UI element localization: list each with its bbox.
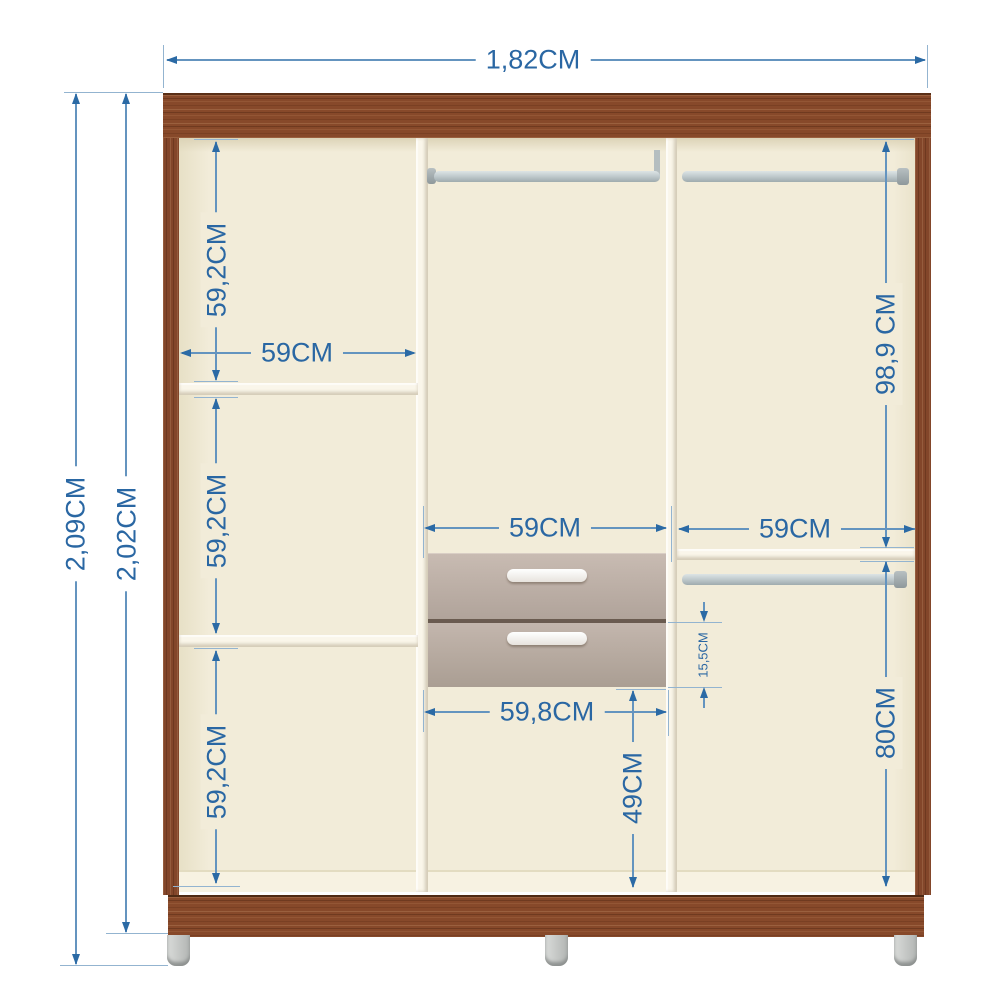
ext-line: [173, 886, 240, 887]
ext-line: [668, 690, 669, 736]
dim-arrow: [882, 561, 890, 572]
drawer-top-handle: [507, 569, 587, 582]
dim-stem: [703, 698, 705, 708]
dim-arrow: [212, 398, 220, 409]
dim-arrow: [882, 141, 890, 152]
dim-label-drawer-height: 15,5CM: [695, 628, 712, 682]
ext-line: [423, 506, 424, 558]
dim-label-right-lower-height: 80CM: [870, 677, 903, 769]
wardrobe-leg-left: [167, 935, 190, 966]
wardrobe-top-panel: [163, 93, 931, 141]
dim-arrow: [122, 93, 130, 104]
left-shelf-lower: [179, 635, 418, 647]
dim-arrow: [166, 56, 177, 64]
ext-line: [668, 622, 722, 623]
wardrobe-right-side-panel: [915, 138, 931, 895]
dim-arrow: [629, 690, 637, 701]
ext-line: [668, 687, 722, 688]
dim-arrow: [915, 56, 926, 64]
drawer-top: [428, 553, 666, 620]
left-shelf-upper: [179, 383, 418, 395]
dim-arrow: [882, 876, 890, 887]
wardrobe-dimension-diagram: 1,82CM 2,09CM 2,02CM 59,2CM 59,2CM 59,2C…: [0, 0, 1000, 1000]
ext-line: [194, 648, 238, 649]
clothes-rail-middle: [434, 171, 660, 182]
right-lower-rail-end-cap: [894, 571, 907, 588]
dim-arrow: [700, 687, 708, 698]
dim-arrow: [72, 954, 80, 965]
divider-left: [416, 138, 428, 892]
drawer-unit: [428, 553, 666, 687]
dim-arrow: [72, 93, 80, 104]
wardrobe-plinth: [168, 895, 924, 937]
dim-label-left-width: 59CM: [251, 337, 343, 370]
clothes-rail-right-top: [682, 171, 902, 182]
dim-arrow: [656, 708, 667, 716]
ext-line: [860, 139, 914, 140]
dim-arrow: [212, 370, 220, 381]
wardrobe-bottom-board: [179, 870, 915, 892]
dim-label-mid-lower-height: 49CM: [617, 742, 650, 834]
dim-label-inner-height: 2,02CM: [111, 477, 144, 592]
ext-line: [671, 506, 672, 562]
dim-arrow: [212, 623, 220, 634]
dim-arrow: [656, 524, 667, 532]
dim-label-left-cell-top: 59,2CM: [201, 213, 234, 328]
dim-arrow: [678, 525, 689, 533]
right-shelf: [677, 549, 915, 560]
wardrobe-leg-middle: [545, 935, 568, 966]
dim-label-total-width: 1,82CM: [476, 44, 591, 77]
dim-arrow: [629, 877, 637, 888]
ext-line: [163, 45, 164, 88]
dim-label-right-top-height: 98,9 CM: [870, 283, 903, 405]
drawer-bottom-handle: [507, 632, 587, 645]
dim-arrow: [405, 349, 416, 357]
ext-line: [927, 45, 928, 88]
dim-arrow: [904, 525, 915, 533]
dim-arrow: [212, 141, 220, 152]
dim-arrow: [424, 524, 435, 532]
wardrobe-left-side-panel: [163, 138, 179, 895]
right-top-rail-end-cap: [897, 168, 909, 185]
dim-arrow: [700, 611, 708, 622]
wardrobe-leg-right: [894, 935, 917, 966]
dim-arrow: [212, 650, 220, 661]
ext-line: [616, 689, 666, 690]
dim-label-mid-lower-width: 59,8CM: [490, 696, 605, 729]
ext-line: [106, 933, 168, 934]
ext-line: [194, 139, 238, 140]
dim-arrow: [424, 708, 435, 716]
dim-label-left-cell-bottom: 59,2CM: [201, 715, 234, 830]
ext-line: [60, 965, 168, 966]
dim-label-outer-height: 2,09CM: [60, 467, 93, 582]
dim-arrow: [882, 537, 890, 548]
dim-arrow: [122, 922, 130, 933]
dim-arrow: [212, 873, 220, 884]
clothes-rail-right-lower: [682, 574, 900, 585]
ext-line: [194, 381, 238, 382]
dim-label-mid-width: 59CM: [499, 512, 591, 545]
dim-label-left-cell-mid: 59,2CM: [201, 464, 234, 579]
dim-label-right-width: 59CM: [749, 513, 841, 546]
dim-arrow: [180, 349, 191, 357]
